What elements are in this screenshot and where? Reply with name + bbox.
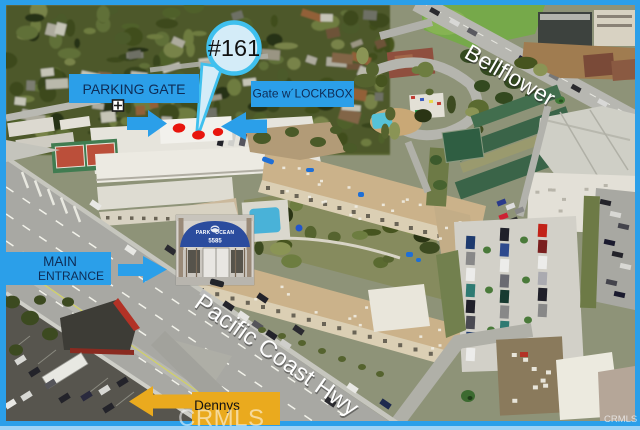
svg-text:Gate w´LOCKBOX: Gate w´LOCKBOX	[252, 87, 352, 101]
svg-text:MAIN: MAIN	[43, 254, 77, 269]
svg-text:CRMLS: CRMLS	[604, 414, 637, 425]
svg-text:ENTRANCE: ENTRANCE	[38, 269, 104, 283]
svg-text:#161: #161	[208, 35, 260, 61]
svg-text:PARKING GATE: PARKING GATE	[83, 81, 186, 97]
svg-text:5585: 5585	[208, 239, 222, 245]
